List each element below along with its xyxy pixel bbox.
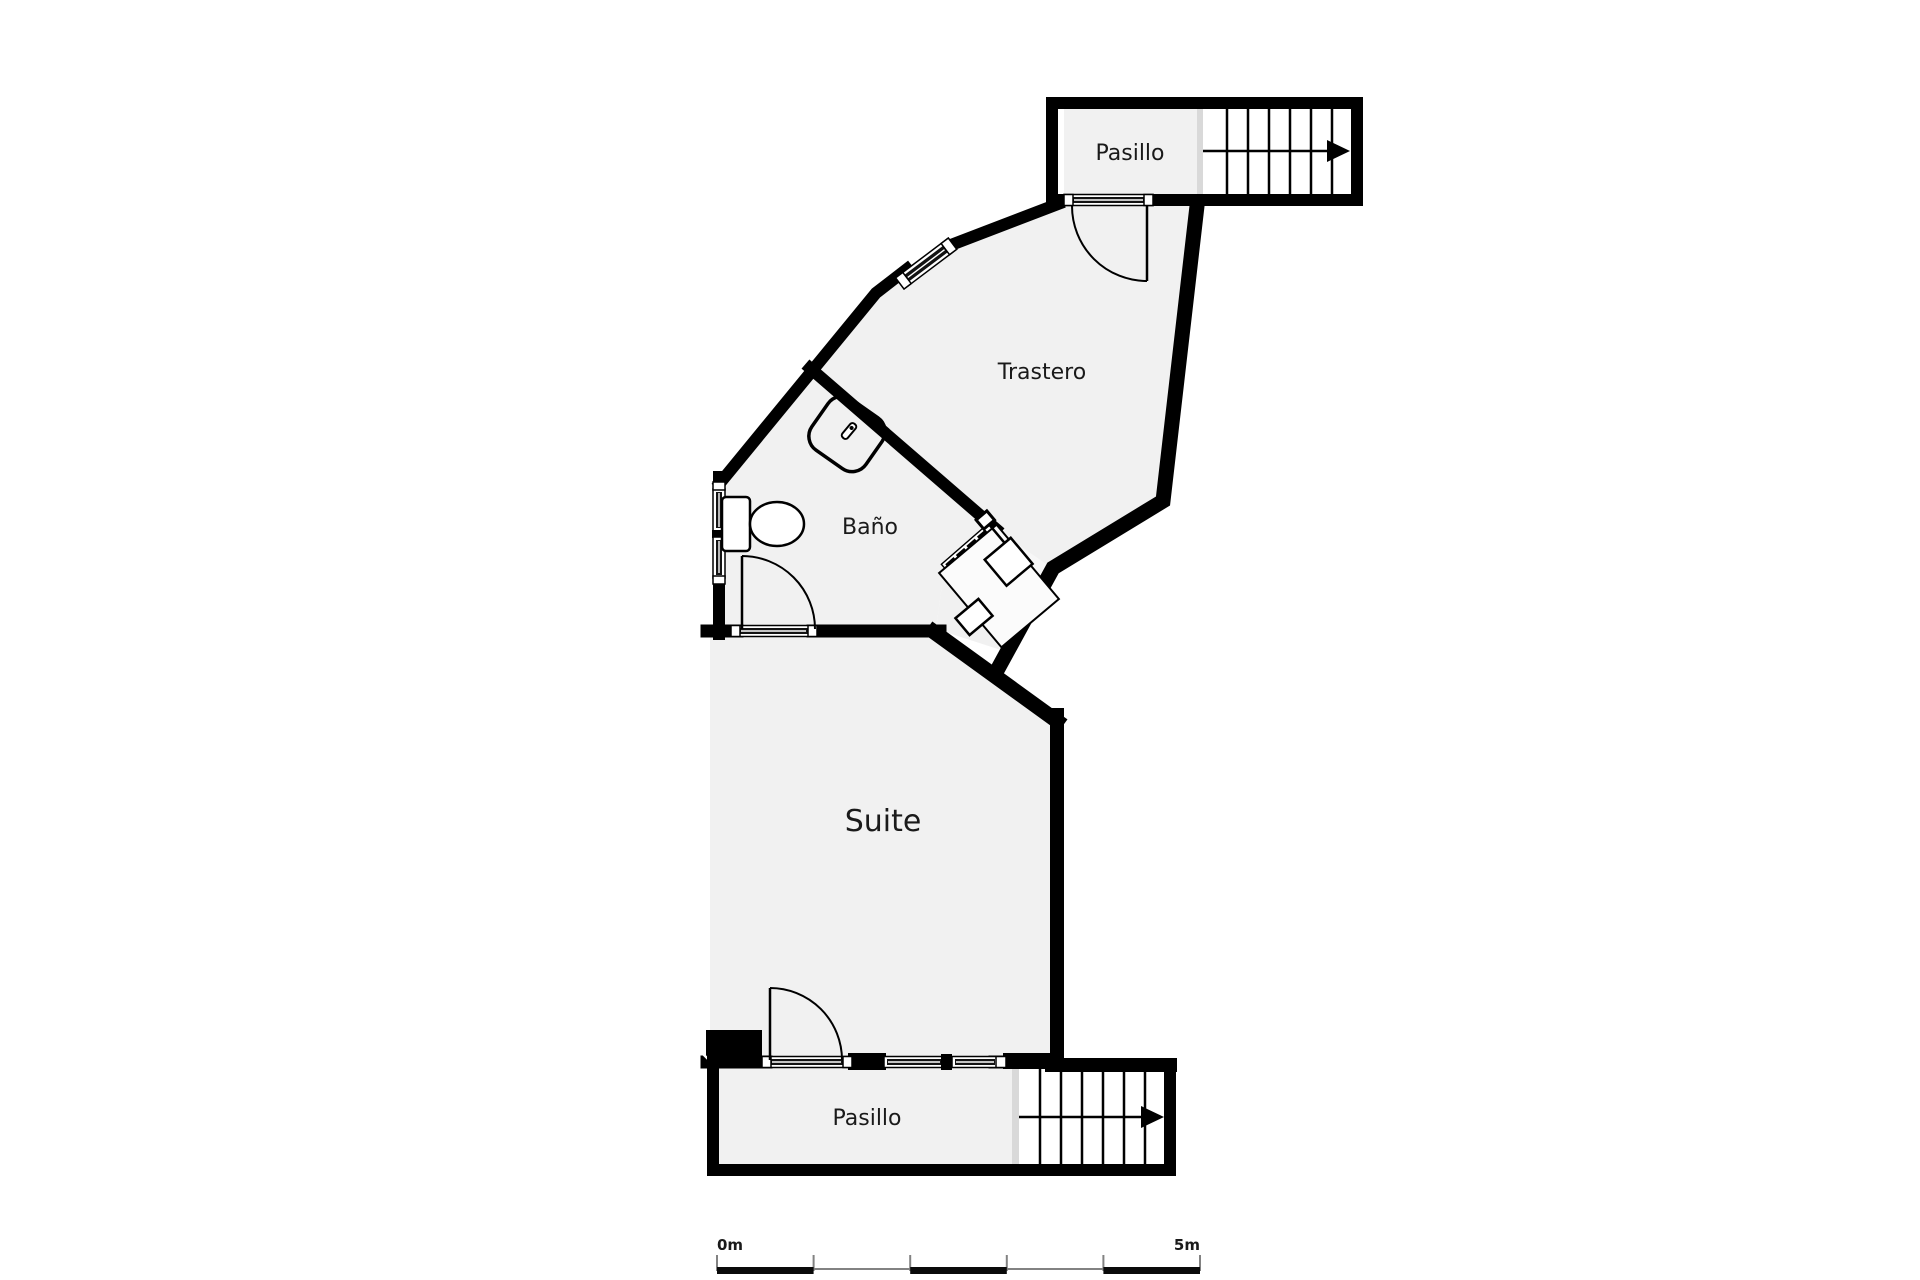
suite-bottom-door-post — [848, 1053, 886, 1070]
scale-end-label: 5m — [1174, 1236, 1200, 1254]
bano-label: Baño — [842, 515, 898, 540]
suite-door-opening — [762, 1057, 852, 1068]
pasillo-bottom-stairs-divider — [1012, 1068, 1019, 1166]
pasillo-bottom-label: Pasillo — [832, 1106, 901, 1131]
floor-plan-canvas: Pasillo Trastero Baño Suite Pasillo 0m 5… — [0, 0, 1920, 1280]
trastero-label: Trastero — [997, 360, 1086, 385]
suite-window-mullion — [941, 1054, 952, 1070]
suite-label: Suite — [845, 804, 922, 839]
scale-start-label: 0m — [717, 1236, 743, 1254]
toilet-bowl — [750, 502, 804, 546]
scale-bar: 0m 5m — [717, 1236, 1200, 1271]
toilet-tank — [722, 497, 750, 551]
floor-plan-page: Pasillo Trastero Baño Suite Pasillo 0m 5… — [0, 0, 1920, 1280]
trastero-door-opening — [1064, 195, 1153, 206]
bano-door-opening — [731, 626, 817, 637]
suite-bottom-window-right — [952, 1057, 1006, 1068]
toilet — [722, 497, 804, 551]
suite-bottom-window-left — [884, 1057, 944, 1068]
pasillo-top-label: Pasillo — [1095, 141, 1164, 166]
pasillo-top-stairs-divider — [1197, 107, 1203, 195]
